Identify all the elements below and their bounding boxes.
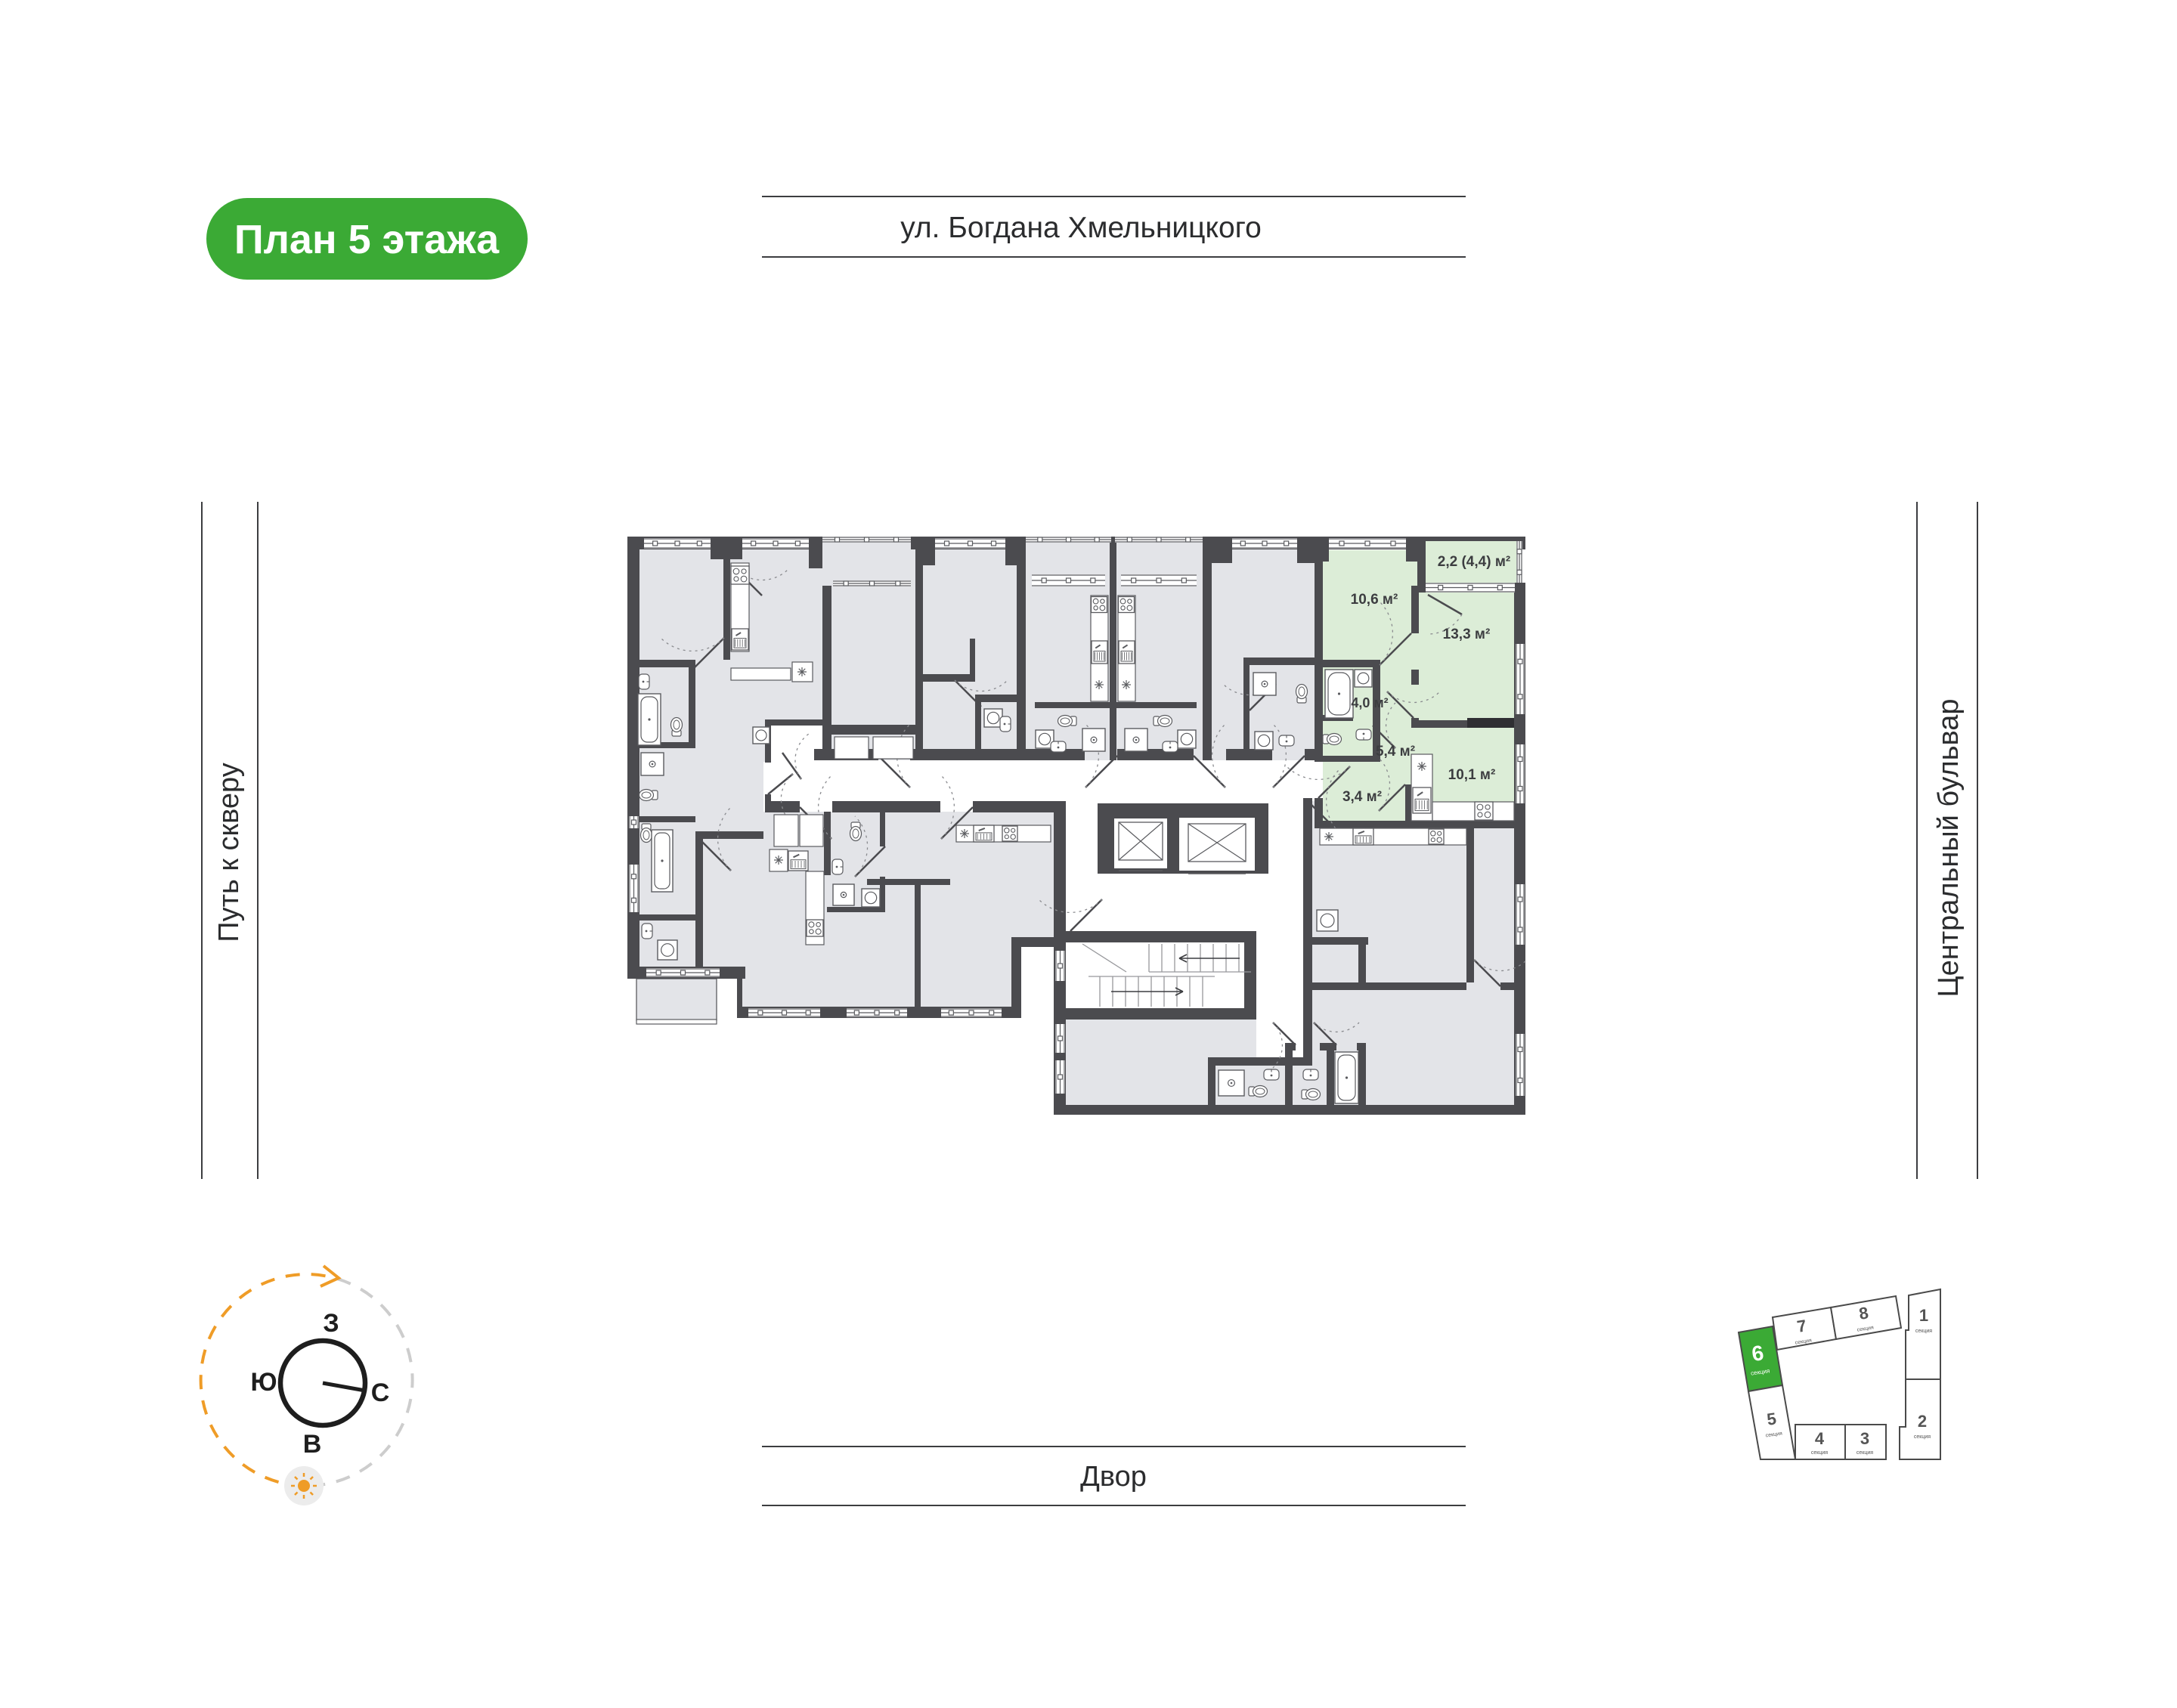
svg-text:Путь к скверу: Путь к скверу	[213, 763, 245, 942]
svg-text:секция: секция	[1856, 1450, 1873, 1456]
svg-text:План 5 этажа: План 5 этажа	[234, 217, 500, 262]
svg-text:2,2 (4,4) м²: 2,2 (4,4) м²	[1438, 554, 1510, 570]
svg-text:секция: секция	[1811, 1450, 1828, 1456]
svg-text:секция: секция	[1914, 1434, 1931, 1440]
svg-text:5,4 м²: 5,4 м²	[1376, 744, 1415, 760]
svg-text:4,0 м²: 4,0 м²	[1351, 695, 1388, 710]
svg-text:1: 1	[1919, 1306, 1928, 1325]
svg-text:секция: секция	[1915, 1329, 1932, 1334]
svg-text:3: 3	[1860, 1429, 1869, 1448]
svg-text:В: В	[303, 1430, 322, 1459]
svg-text:3,4 м²: 3,4 м²	[1342, 789, 1382, 805]
svg-text:2: 2	[1918, 1412, 1927, 1431]
svg-text:13,3 м²: 13,3 м²	[1443, 627, 1491, 642]
svg-text:10,1 м²: 10,1 м²	[1448, 767, 1496, 783]
svg-text:ул. Богдана Хмельницкого: ул. Богдана Хмельницкого	[900, 212, 1262, 244]
svg-text:Двор: Двор	[1080, 1461, 1147, 1493]
svg-text:Центральный бульвар: Центральный бульвар	[1933, 698, 1965, 997]
svg-text:Ю: Ю	[250, 1368, 277, 1397]
svg-text:10,6 м²: 10,6 м²	[1351, 592, 1398, 608]
svg-text:С: С	[371, 1378, 390, 1407]
svg-text:4: 4	[1815, 1429, 1825, 1448]
svg-text:З: З	[323, 1309, 339, 1338]
